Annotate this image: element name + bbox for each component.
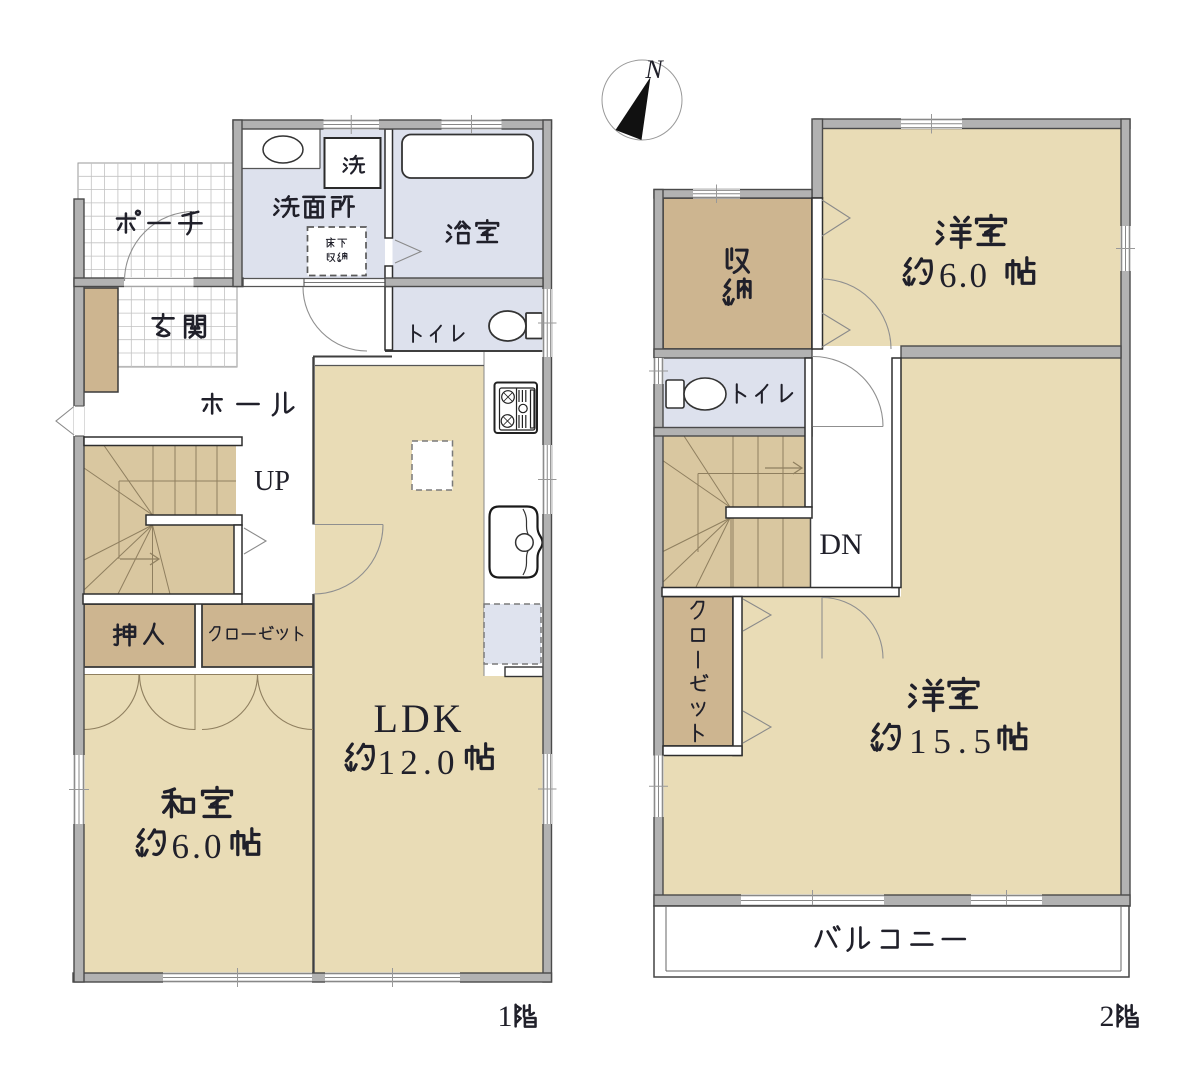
svg-text:1: 1 — [498, 1000, 513, 1033]
svg-text:6.0: 6.0 — [172, 827, 222, 866]
svg-text:2: 2 — [1100, 1000, 1115, 1033]
svg-text:UP: UP — [254, 466, 290, 497]
svg-text:15.5: 15.5 — [909, 722, 991, 761]
svg-text:N: N — [644, 55, 664, 84]
svg-text:DN: DN — [819, 528, 862, 561]
svg-text:6.0: 6.0 — [939, 256, 987, 295]
svg-text:12.0: 12.0 — [378, 743, 455, 782]
svg-text:LDK: LDK — [374, 696, 462, 741]
